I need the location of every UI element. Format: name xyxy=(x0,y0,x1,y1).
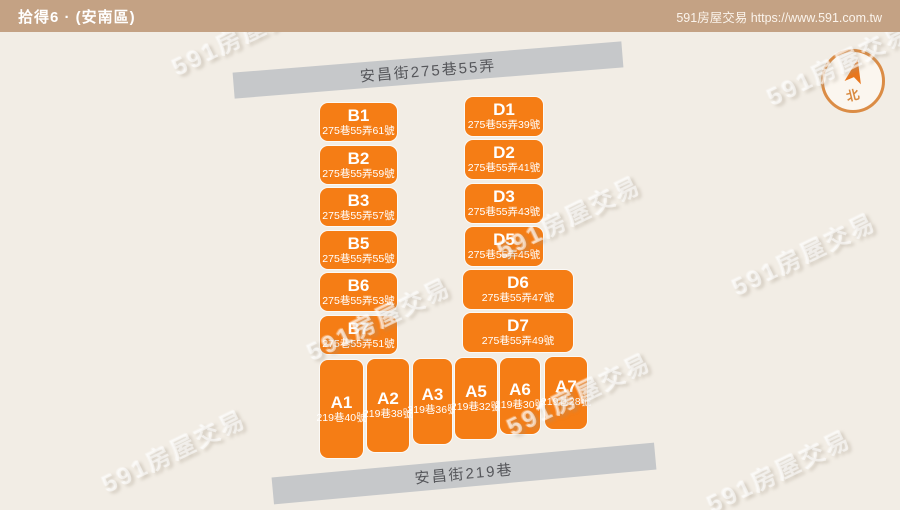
block-address: 275巷55弄59號 xyxy=(322,168,394,181)
block-id: D5 xyxy=(493,231,515,249)
building-block-d5[interactable]: D5 275巷55弄45號 xyxy=(465,227,543,266)
building-block-b2[interactable]: B2 275巷55弄59號 xyxy=(320,146,397,184)
building-block-d3[interactable]: D3 275巷55弄43號 xyxy=(465,184,543,223)
road-bottom-label: 安昌街219巷 xyxy=(414,459,515,489)
block-address: 275巷55弄55號 xyxy=(322,253,394,266)
block-address: 275巷55弄49號 xyxy=(482,335,554,348)
watermark: 591房屋交易 xyxy=(725,202,881,302)
block-id: D1 xyxy=(493,101,515,119)
building-block-b5[interactable]: B5 275巷55弄55號 xyxy=(320,231,397,269)
block-id: A3 xyxy=(422,386,444,404)
block-address: 219巷28號 xyxy=(541,396,591,409)
block-id: B7 xyxy=(348,320,370,338)
block-address: 275巷55弄57號 xyxy=(322,210,394,223)
block-address: 219巷32號 xyxy=(451,401,501,414)
north-compass: 北 xyxy=(821,49,885,113)
building-block-a5[interactable]: A5 219巷32號 xyxy=(455,358,497,439)
building-block-a3[interactable]: A3 219巷36號 xyxy=(413,359,452,444)
building-block-a1[interactable]: A1 219巷40號 xyxy=(320,360,363,458)
block-address: 275巷55弄53號 xyxy=(322,295,394,308)
block-address: 275巷55弄41號 xyxy=(468,162,540,175)
block-address: 219巷30號 xyxy=(495,399,545,412)
watermark: 591房屋交易 xyxy=(700,419,856,510)
block-address: 275巷55弄51號 xyxy=(322,338,394,351)
road-top: 安昌街275巷55弄 xyxy=(233,41,624,98)
building-block-b1[interactable]: B1 275巷55弄61號 xyxy=(320,103,397,141)
building-block-b6[interactable]: B6 275巷55弄53號 xyxy=(320,273,397,311)
block-id: A6 xyxy=(509,381,531,399)
north-label: 北 xyxy=(844,84,861,106)
block-id: D2 xyxy=(493,144,515,162)
block-id: D6 xyxy=(507,274,529,292)
page-title: 拾得6 · (安南區) xyxy=(18,6,136,27)
block-id: B6 xyxy=(348,277,370,295)
building-block-d2[interactable]: D2 275巷55弄41號 xyxy=(465,140,543,179)
block-id: B5 xyxy=(348,235,370,253)
block-address: 219巷40號 xyxy=(316,412,366,425)
block-id: A1 xyxy=(331,394,353,412)
block-address: 275巷55弄61號 xyxy=(322,125,394,138)
site-map-page: 拾得6 · (安南區) 591房屋交易 https://www.591.com.… xyxy=(0,0,900,510)
building-block-d6[interactable]: D6 275巷55弄47號 xyxy=(463,270,573,309)
block-address: 275巷55弄47號 xyxy=(482,292,554,305)
block-id: B3 xyxy=(348,192,370,210)
block-id: A2 xyxy=(377,390,399,408)
block-id: B2 xyxy=(348,150,370,168)
north-arrow-icon xyxy=(842,57,869,87)
block-id: D3 xyxy=(493,188,515,206)
block-address: 275巷55弄43號 xyxy=(468,206,540,219)
block-address: 275巷55弄39號 xyxy=(468,119,540,132)
building-block-b3[interactable]: B3 275巷55弄57號 xyxy=(320,188,397,226)
watermark: 591房屋交易 xyxy=(95,399,251,499)
site-credit: 591房屋交易 https://www.591.com.tw xyxy=(676,7,882,26)
block-address: 275巷55弄45號 xyxy=(468,249,540,262)
building-block-d1[interactable]: D1 275巷55弄39號 xyxy=(465,97,543,136)
map-canvas: 591房屋交易 591房屋交易 591房屋交易 591房屋交易 591房屋交易 … xyxy=(0,32,900,510)
building-block-b7[interactable]: B7 275巷55弄51號 xyxy=(320,316,397,354)
building-block-a6[interactable]: A6 219巷30號 xyxy=(500,358,540,434)
building-block-d7[interactable]: D7 275巷55弄49號 xyxy=(463,313,573,352)
block-address: 219巷38號 xyxy=(363,408,413,421)
header-bar: 拾得6 · (安南區) 591房屋交易 https://www.591.com.… xyxy=(0,0,900,32)
block-id: D7 xyxy=(507,317,529,335)
block-id: B1 xyxy=(348,107,370,125)
building-block-a7[interactable]: A7 219巷28號 xyxy=(545,357,587,429)
road-top-label: 安昌街275巷55弄 xyxy=(359,54,497,86)
block-id: A5 xyxy=(465,383,487,401)
block-id: A7 xyxy=(555,378,577,396)
building-block-a2[interactable]: A2 219巷38號 xyxy=(367,359,409,452)
